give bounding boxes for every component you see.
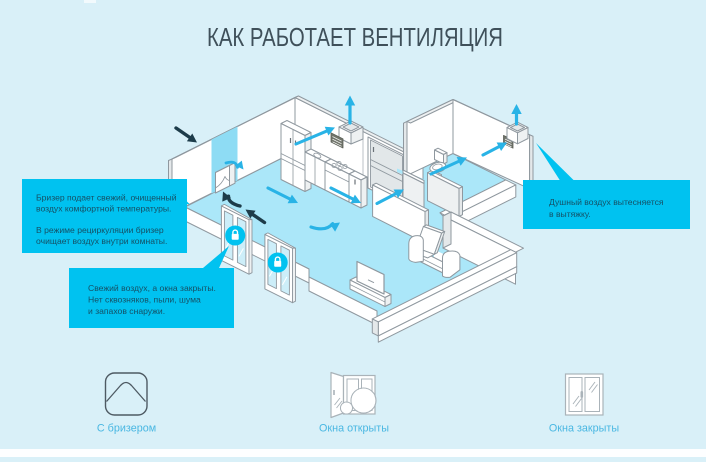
svg-text:Нет сквозняков, пыли, шума: Нет сквозняков, пыли, шума bbox=[88, 294, 201, 304]
svg-text:В режиме рециркуляции бризер: В режиме рециркуляции бризер bbox=[36, 225, 164, 235]
svg-text:КАК РАБОТАЕТ ВЕНТИЛЯЦИЯ: КАК РАБОТАЕТ ВЕНТИЛЯЦИЯ bbox=[207, 24, 503, 52]
svg-text:Бризер подает свежий, очищенны: Бризер подает свежий, очищенный bbox=[36, 193, 177, 203]
svg-text:очищает воздух внутри комнаты.: очищает воздух внутри комнаты. bbox=[36, 236, 167, 246]
svg-text:в вытяжку.: в вытяжку. bbox=[549, 209, 591, 219]
svg-text:Окна открыты: Окна открыты bbox=[319, 423, 389, 435]
svg-text:Окна закрыты: Окна закрыты bbox=[549, 423, 619, 435]
svg-text:Душный воздух вытесняется: Душный воздух вытесняется bbox=[549, 197, 664, 207]
svg-text:воздух комфортной температуры.: воздух комфортной температуры. bbox=[36, 203, 171, 213]
svg-text:и запахов снаружи.: и запахов снаружи. bbox=[88, 306, 165, 316]
svg-text:Свежий воздух, а окна закрыты.: Свежий воздух, а окна закрыты. bbox=[88, 283, 216, 293]
svg-text:С бризером: С бризером bbox=[97, 423, 156, 435]
